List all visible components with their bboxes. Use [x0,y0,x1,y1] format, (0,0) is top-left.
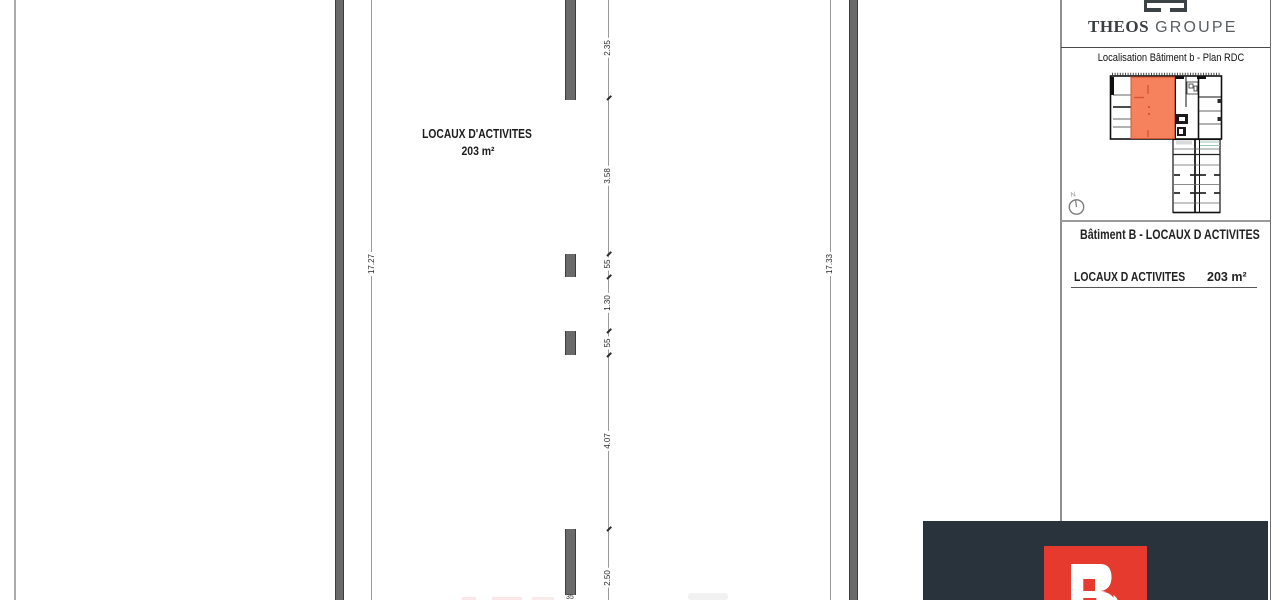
svg-text:N: N [1070,191,1076,199]
